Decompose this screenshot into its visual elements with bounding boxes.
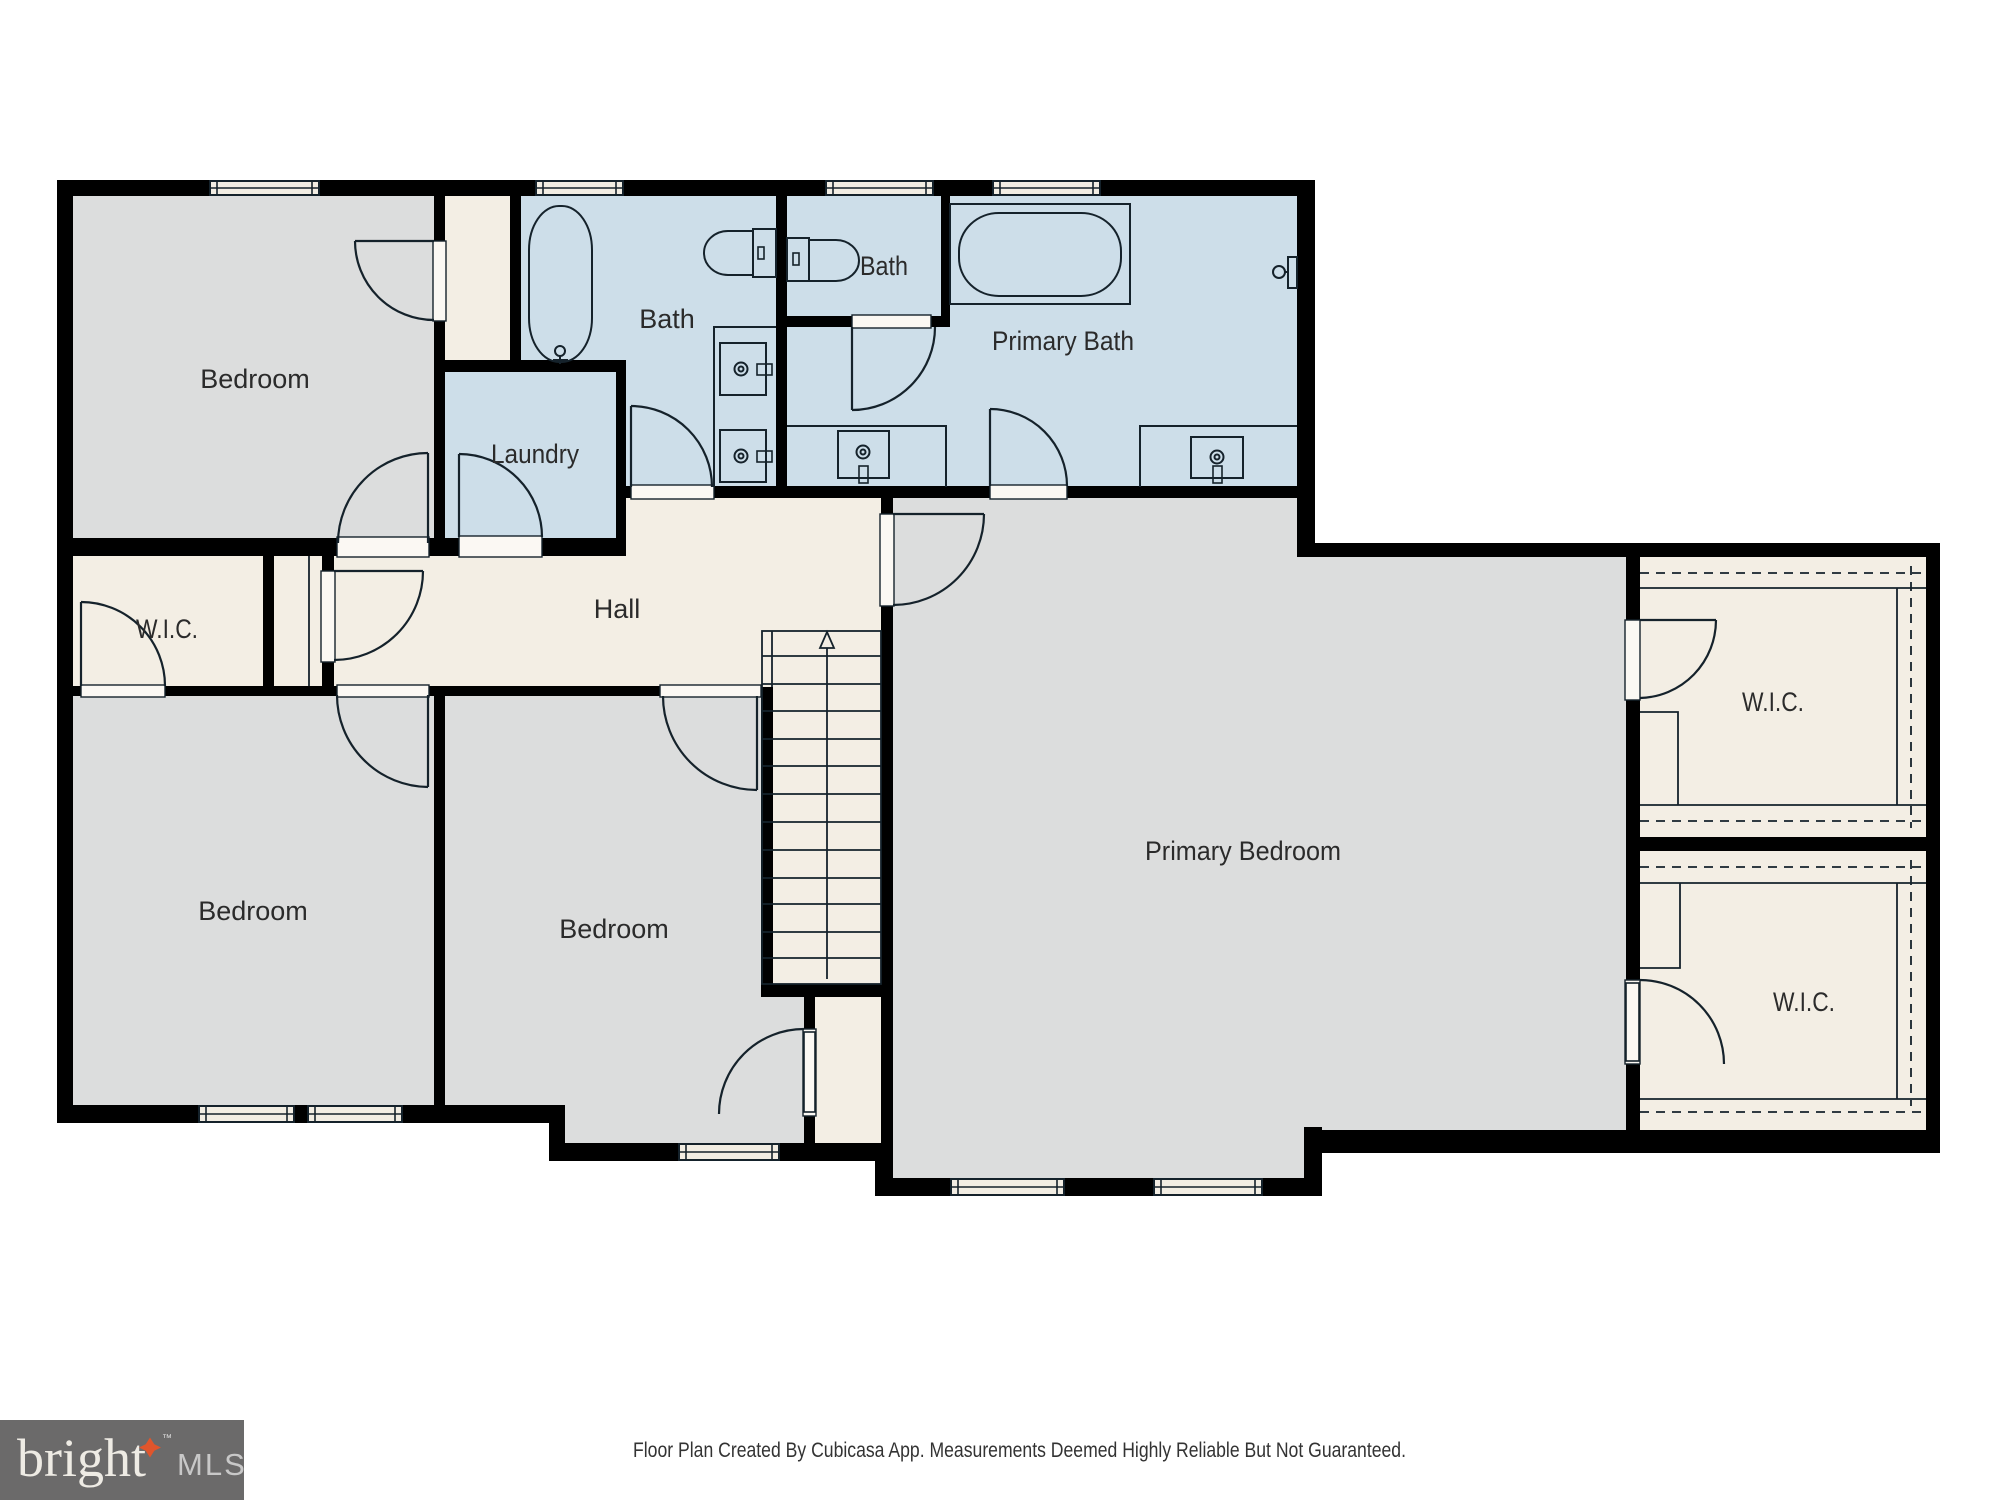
svg-text:™: ™ [162, 1433, 172, 1444]
svg-text:bright: bright [17, 1428, 146, 1488]
svg-text:W.I.C.: W.I.C. [136, 614, 198, 644]
svg-text:Bedroom: Bedroom [200, 364, 310, 394]
svg-text:Bedroom: Bedroom [559, 914, 669, 944]
svg-text:MLS: MLS [177, 1447, 247, 1482]
svg-text:Floor Plan Created By Cubicasa: Floor Plan Created By Cubicasa App. Meas… [633, 1439, 1406, 1462]
svg-text:Primary Bedroom: Primary Bedroom [1145, 836, 1341, 866]
svg-text:Laundry: Laundry [491, 439, 579, 469]
svg-text:Primary Bath: Primary Bath [992, 326, 1134, 356]
svg-text:W.I.C.: W.I.C. [1773, 987, 1835, 1017]
svg-text:W.I.C.: W.I.C. [1742, 687, 1804, 717]
svg-text:Hall: Hall [594, 594, 641, 624]
svg-text:Bath: Bath [639, 304, 695, 334]
svg-text:Bedroom: Bedroom [198, 896, 308, 926]
svg-text:Bath: Bath [860, 251, 908, 281]
